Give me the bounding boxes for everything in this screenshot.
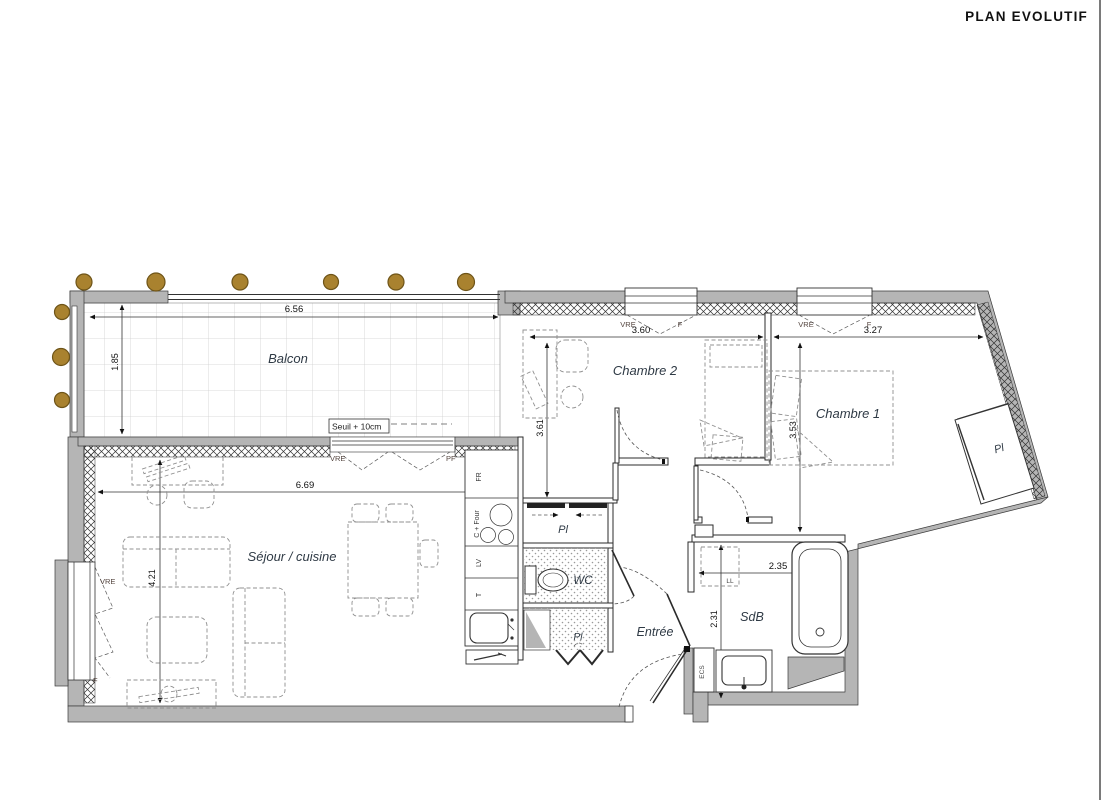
kitchen-low-cabinet	[466, 650, 518, 664]
toilet-bowl	[538, 569, 568, 591]
wall-south-end-cap	[625, 706, 633, 722]
chambre1-door-leaf	[694, 466, 698, 520]
wc-door-leaf	[612, 550, 634, 596]
chambre2-chair	[556, 340, 588, 372]
water-heater: ECS	[694, 648, 714, 692]
wc-room: WC	[523, 548, 634, 604]
balcony: Balcon 6.56 1.85 Seuil + 10cm	[53, 273, 521, 452]
wall-closet2-east	[608, 608, 613, 652]
sejour-desk-item-1	[142, 455, 185, 473]
entree-label: Entrée	[637, 625, 674, 639]
fridge-label: FR	[476, 472, 483, 481]
west-window: VRE F	[68, 562, 115, 685]
bifold-door-1	[556, 650, 580, 664]
window-chambre1	[797, 288, 872, 315]
balcony-door-pf-label: PF	[446, 454, 456, 463]
hall-closet: Pl	[527, 503, 607, 536]
entrance-door-leaf	[653, 650, 687, 703]
chambre2: Chambre 2 3.60 3.61	[521, 325, 767, 497]
chambre2-depth-dim: 3.61	[535, 419, 545, 437]
chambre1-door-hinge	[746, 517, 749, 522]
bifold-door-2	[580, 650, 603, 664]
insulation-north-1	[513, 303, 625, 315]
wall-between-chambres	[765, 313, 771, 460]
wall-chambre2-jog	[613, 463, 618, 500]
toilet-tank	[525, 566, 536, 594]
t-label: T	[476, 592, 483, 597]
window-chambre2	[625, 288, 697, 315]
sejour-width-dim: 6.69	[296, 480, 315, 491]
wall-chambre2-south-mid	[618, 458, 668, 465]
sejour-cuisine: Séjour / cuisine 6.69 4.21	[98, 455, 516, 708]
sdb-duct-box	[695, 525, 713, 537]
chambre2-desk-item	[521, 371, 548, 409]
wall-hall-chambre1-south	[748, 517, 772, 523]
chambre1-depth-dim: 3.53	[788, 421, 798, 439]
dining-chair-2	[386, 504, 413, 522]
wall-sdb-north	[692, 535, 845, 542]
wall-balcony-side-2	[455, 437, 518, 446]
chambre1-label: Chambre 1	[816, 406, 880, 421]
sejour-desk	[132, 457, 223, 485]
balcony-width-dim: 6.56	[285, 304, 304, 315]
floor-plan-drawing: PLAN EVOLUTIF Balcon 6.56 1.85 Seuil + 1…	[0, 0, 1110, 800]
wall-west-pilaster	[55, 560, 68, 686]
dining-chair-3	[352, 598, 379, 616]
wall-chambre2-south-left	[523, 498, 617, 503]
bathtub	[792, 542, 848, 654]
balcony-depth-dim: 1.85	[110, 353, 120, 371]
insulation-north-3	[872, 303, 975, 315]
balcony-left-glazing	[72, 306, 77, 432]
washing-machine-label: LL	[726, 578, 734, 585]
oven-label: C + Four	[474, 510, 481, 538]
sdb-sink	[716, 650, 772, 692]
dining-chair-1	[352, 504, 379, 522]
kitchen-sink	[470, 613, 508, 643]
chambre2-furniture	[521, 330, 767, 461]
chambre2-desk	[523, 330, 557, 418]
wall-step-below-bathtub	[788, 657, 844, 689]
sdb-label: SdB	[740, 610, 764, 624]
sofa-1	[123, 537, 230, 587]
dishwasher-label: LV	[476, 559, 483, 567]
chambre2-bed	[705, 340, 767, 457]
coffee-table	[147, 617, 207, 663]
balcony-door-vre-leader	[338, 452, 388, 470]
entry-closet-label: Pl	[574, 632, 584, 643]
wall-balcony-side-1	[78, 437, 330, 446]
water-heater-label: ECS	[699, 665, 706, 679]
chambre1-throw	[795, 428, 833, 468]
chambre1: Chambre 1 3.27 3.53 Pl	[694, 325, 1034, 532]
window-sejour-west-vre-label: VRE	[100, 577, 115, 586]
chambre1-width-dim: 3.27	[864, 325, 883, 336]
sofa-2	[233, 588, 285, 697]
wall-wc-closet2-divider	[523, 603, 613, 608]
wall-kitchen-hall	[518, 437, 523, 660]
closet-sliding-door-2	[569, 503, 607, 508]
sejour-desk-chair-1	[147, 485, 167, 505]
sdb-depth-dim: 2.31	[709, 610, 719, 628]
chambre2-label: Chambre 2	[613, 363, 678, 378]
sejour-furniture	[123, 455, 438, 708]
chambre2-door-hinge	[662, 459, 665, 464]
entry-closet: Pl	[524, 608, 608, 664]
wall-north-and-ne-diagonal	[505, 291, 1048, 501]
tv-unit	[127, 680, 216, 708]
wall-chambre2-south-right	[695, 458, 770, 465]
chambre2-stool	[561, 386, 583, 408]
wall-closet-wc-east	[608, 503, 613, 605]
dining-chair-5	[420, 540, 438, 567]
entrance-door-jamb	[684, 648, 693, 714]
chambre2-width-dim: 3.60	[632, 325, 651, 336]
chambre1-pillow-1	[770, 375, 801, 416]
wc-door-arc	[613, 596, 634, 604]
entree: Entrée	[619, 625, 690, 707]
window-chambre1-vre-label: VRE	[798, 320, 813, 329]
floor-plan-sheet: PLAN EVOLUTIF Balcon 6.56 1.85 Seuil + 1…	[0, 0, 1110, 800]
wc-label: WC	[573, 575, 593, 587]
wall-south	[68, 706, 630, 722]
closet-sliding-door-1	[527, 503, 565, 508]
seuil-note: Seuil + 10cm	[332, 422, 381, 432]
balcony-label: Balcon	[268, 351, 308, 366]
chambre1-door-arc	[700, 470, 748, 518]
wall-sdb-west	[688, 542, 694, 592]
insulation-balcony-1	[84, 446, 330, 457]
balcony-wall-top-left	[70, 291, 168, 303]
balcony-door-vre-label: VRE	[330, 454, 345, 463]
sejour-depth-dim: 4.21	[147, 569, 157, 587]
dining-chair-4	[386, 598, 413, 616]
chambre2-door-arc	[617, 410, 663, 460]
dining-table	[348, 522, 418, 598]
tv-base	[161, 686, 177, 702]
wall-closet-wc-divider	[523, 543, 613, 548]
balcony-door-annotations: VRE PF	[330, 452, 456, 470]
sdb-width-dim: 2.35	[769, 561, 788, 572]
entrance-door-hinge	[684, 646, 690, 652]
plan-title: PLAN EVOLUTIF	[965, 9, 1088, 24]
sejour-label: Séjour / cuisine	[248, 549, 337, 564]
window-sejour-west	[68, 562, 95, 680]
window-sejour-west-f-label: F	[93, 676, 98, 685]
chambre2-throw	[700, 420, 742, 446]
entrance-outer-step	[693, 692, 708, 722]
tv-screen	[139, 687, 199, 702]
balcony-door-threshold	[330, 437, 455, 452]
window-chambre2-f-label: F	[678, 320, 683, 329]
balcony-tiled-floor	[84, 303, 500, 437]
insulation-north-2	[697, 303, 797, 315]
chambre2-pillow	[710, 345, 762, 367]
hall-closet-label: Pl	[558, 524, 568, 536]
insulation-west-1	[84, 443, 95, 562]
balcony-door-pf-leader	[392, 452, 450, 470]
kitchen-units: FR C + Four LV T	[465, 450, 518, 664]
